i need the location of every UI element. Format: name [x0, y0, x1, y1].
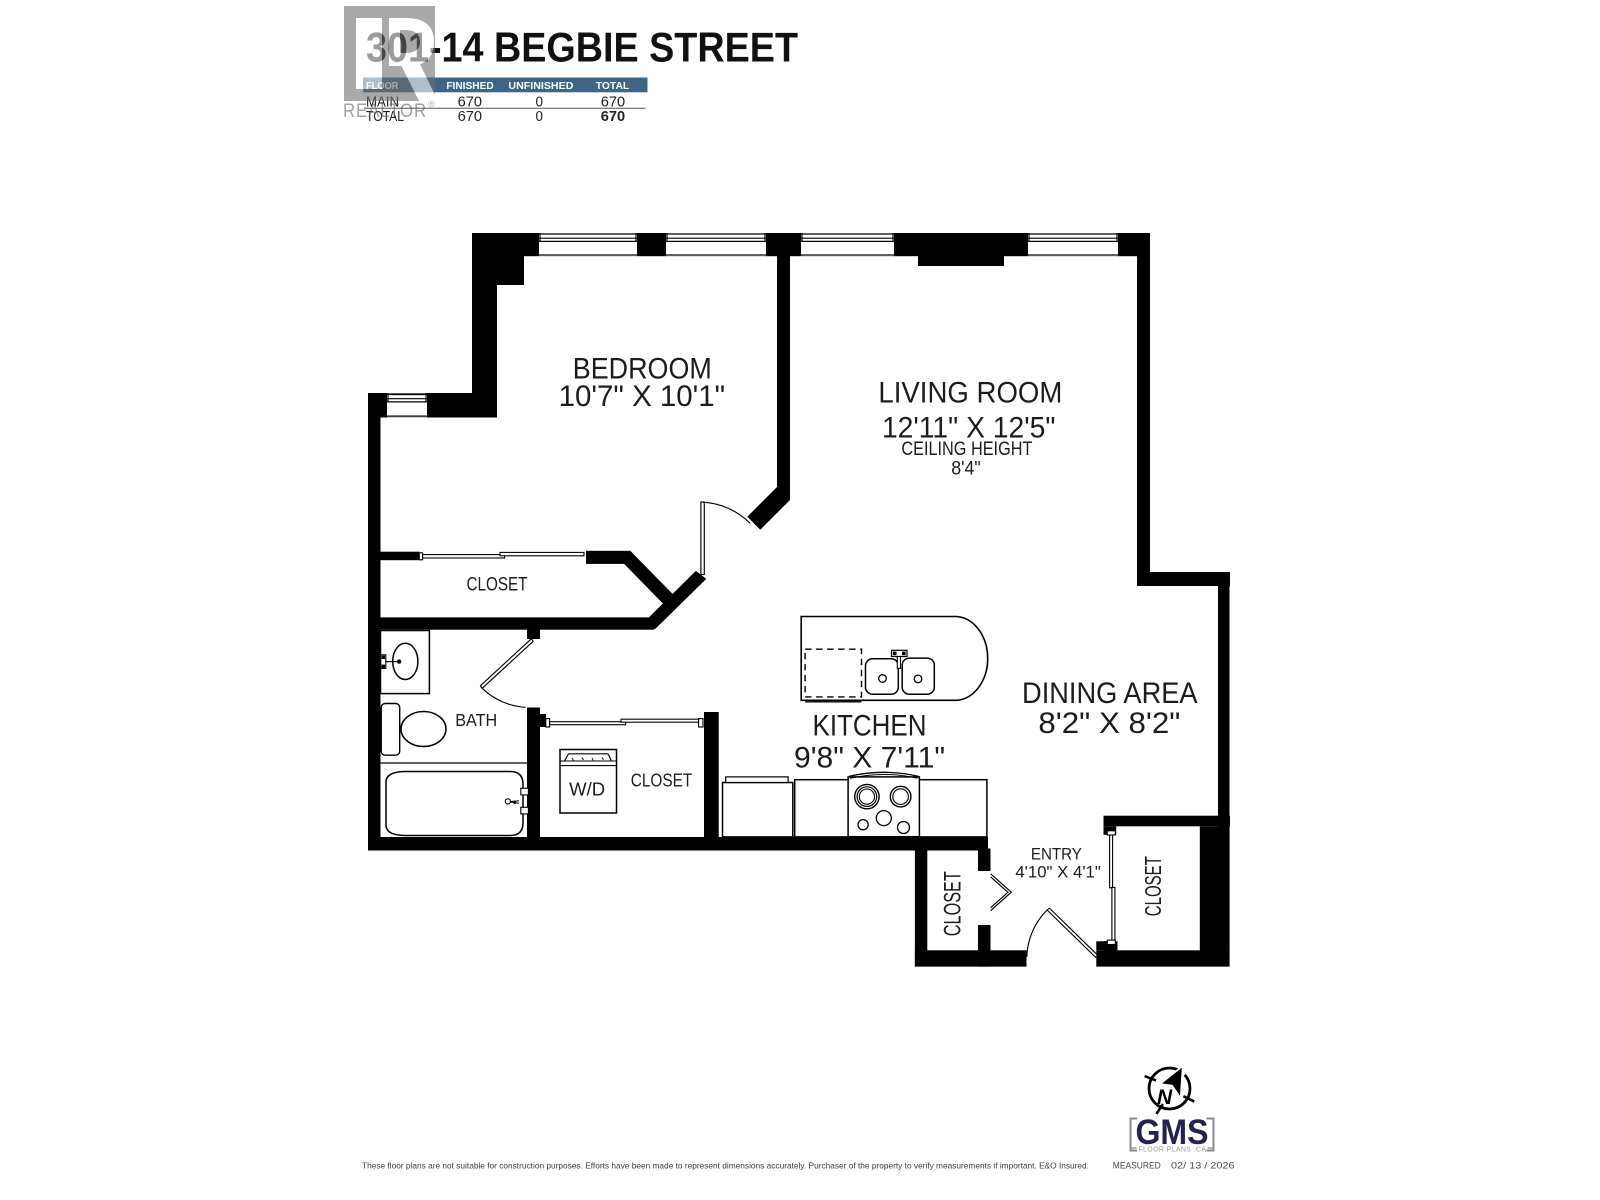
svg-text:W/D: W/D [569, 780, 605, 800]
svg-text:DINING AREA: DINING AREA [1022, 677, 1198, 710]
svg-text:These floor plans are not suit: These floor plans are not suitable for c… [362, 1162, 1089, 1171]
svg-text:10'7" X 10'1": 10'7" X 10'1" [559, 380, 726, 413]
svg-text:02/ 13 / 2026: 02/ 13 / 2026 [1171, 1161, 1235, 1171]
svg-text:CLOSET: CLOSET [939, 871, 966, 936]
svg-text:9'8" X 7'11": 9'8" X 7'11" [794, 742, 945, 775]
svg-text:0: 0 [536, 109, 544, 125]
svg-text:670: 670 [601, 109, 625, 125]
svg-text:CLOSET: CLOSET [1140, 856, 1166, 916]
svg-text:®: ® [428, 99, 435, 109]
svg-text:FINISHED: FINISHED [446, 81, 493, 92]
svg-text:670: 670 [458, 109, 482, 125]
svg-text:ENTRY: ENTRY [1031, 845, 1082, 864]
svg-text:MEASURED: MEASURED [1113, 1161, 1161, 1171]
svg-text:BATH: BATH [455, 710, 497, 730]
svg-text:FLOOR PLANS .CA: FLOOR PLANS .CA [1138, 1146, 1206, 1153]
svg-text:8'2" X 8'2": 8'2" X 8'2" [1038, 707, 1180, 740]
svg-text:CEILING HEIGHT: CEILING HEIGHT [901, 439, 1032, 460]
svg-text:LIVING ROOM: LIVING ROOM [878, 377, 1062, 410]
svg-text:8'4": 8'4" [951, 458, 981, 479]
svg-text:UNFINISHED: UNFINISHED [508, 81, 573, 92]
svg-text:CLOSET: CLOSET [631, 771, 693, 791]
svg-text:REALTOR: REALTOR [343, 100, 427, 122]
svg-text:N: N [1157, 1086, 1173, 1109]
svg-text:TOTAL: TOTAL [596, 81, 630, 92]
svg-text:CLOSET: CLOSET [467, 575, 528, 596]
svg-text:KITCHEN: KITCHEN [813, 710, 927, 743]
svg-text:4'10" X 4'1": 4'10" X 4'1" [1015, 863, 1101, 882]
